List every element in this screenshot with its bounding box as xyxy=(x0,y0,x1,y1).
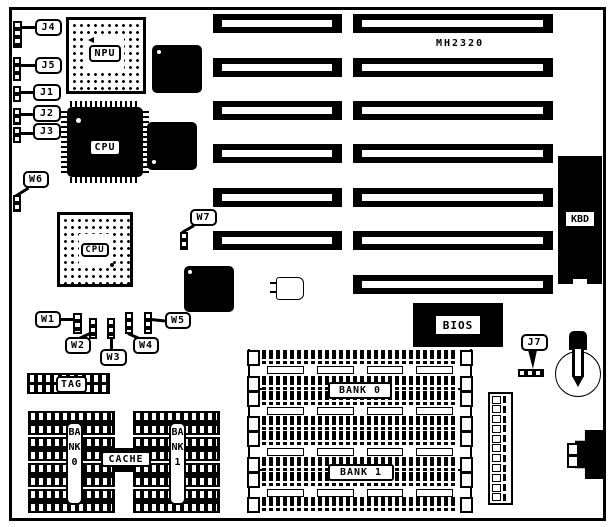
tag-label: TAG xyxy=(56,376,87,393)
jumper-header-j2 xyxy=(13,108,21,125)
jumper-header-j5 xyxy=(13,57,21,81)
isa-slot-main-6 xyxy=(353,231,553,250)
cpu-pga-socket: CPU xyxy=(57,212,133,287)
jumper-header-j4 xyxy=(13,21,22,48)
cpu-qfp-label: CPU xyxy=(89,139,120,156)
jumper-header-w1 xyxy=(73,313,82,334)
isa-slot-ext-1 xyxy=(213,14,342,33)
jumper-header-j1 xyxy=(13,86,21,102)
isa-slot-main-3 xyxy=(353,101,553,120)
jumper-label-w5: W5 xyxy=(165,312,191,329)
isa-slot-ext-4 xyxy=(213,144,342,163)
kbd-notch xyxy=(573,279,587,284)
logic-chip-1 xyxy=(152,45,202,93)
simm-socket-1 xyxy=(262,350,458,364)
jumper-label-w2: W2 xyxy=(65,337,91,354)
jumper-header-w4 xyxy=(125,312,133,334)
jumper-header-w2 xyxy=(89,318,97,339)
jumper-label-w1: W1 xyxy=(35,311,61,328)
jumper-header-j7 xyxy=(518,369,544,377)
isa-slot-ext-2 xyxy=(213,58,342,77)
simm-socket-5 xyxy=(262,431,458,445)
isa-slot-ext-6 xyxy=(213,231,342,250)
isa-slot-ext-3 xyxy=(213,101,342,120)
logic-chip-2 xyxy=(147,122,197,170)
jumper-label-j5: J5 xyxy=(35,57,62,74)
cache-bank1-label: BANK1 xyxy=(169,422,186,505)
isa-slot-main-5 xyxy=(353,188,553,207)
jumper-label-j1: J1 xyxy=(33,84,61,101)
isa-slot-main-4 xyxy=(353,144,553,163)
cpu-pga-label: CPU xyxy=(81,243,108,257)
jumper-label-w7: W7 xyxy=(190,209,217,226)
logic-chip-3 xyxy=(184,266,234,312)
bios-label: BIOS xyxy=(436,316,480,334)
isa-slot-ext-5 xyxy=(213,188,342,207)
jumper-label-j7: J7 xyxy=(521,334,548,351)
jumper-label-j2: J2 xyxy=(33,105,61,122)
jumper-label-w3: W3 xyxy=(100,349,127,366)
simm-bank0-label: BANK 0 xyxy=(328,382,392,399)
jumper-header-w3 xyxy=(107,318,115,339)
isa-slot-main-1 xyxy=(353,14,553,33)
jumper-header-w7 xyxy=(180,232,188,250)
jumper-header-w5 xyxy=(144,312,152,334)
bios-chip: BIOS xyxy=(413,303,503,347)
jumper-label-j3: J3 xyxy=(33,123,61,140)
jumper-header-w6 xyxy=(13,195,21,212)
board-model-text: MH2320 xyxy=(436,38,484,49)
simm-socket-4 xyxy=(262,416,458,430)
jumper-header-j3 xyxy=(13,127,21,143)
keyboard-connector: KBD xyxy=(558,156,602,284)
kbd-label: KBD xyxy=(566,212,594,226)
simm-socket-8 xyxy=(262,497,458,511)
isa-slot-main-2 xyxy=(353,58,553,77)
power-connector xyxy=(488,392,513,505)
npu-label: NPU xyxy=(89,45,120,62)
jumper-label-w4: W4 xyxy=(133,337,159,354)
isa-slot-main-7 xyxy=(353,275,553,294)
jumper-label-w6: W6 xyxy=(23,171,49,188)
simm-bank1-label: BANK 1 xyxy=(328,464,394,481)
motherboard-diagram: MH2320 J4 J5 J1 J2 J3 W6 W7 NPU CPU xyxy=(0,0,611,527)
jumper-label-j4: J4 xyxy=(35,19,62,36)
cache-bank0-label: BANK0 xyxy=(66,422,83,505)
cache-label: CACHE xyxy=(101,451,151,467)
pin1-dot-icon xyxy=(110,263,114,267)
npu-socket: NPU xyxy=(66,17,146,94)
